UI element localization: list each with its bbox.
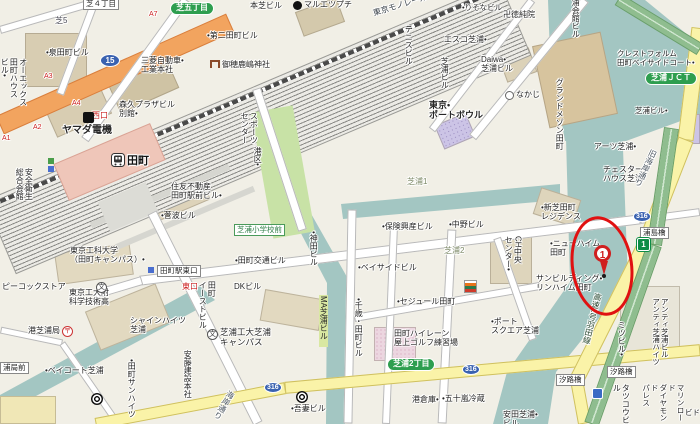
bldg-sumitomo-tamachi-ekimae: 住友不動産 田町駅前ビル• (171, 182, 222, 200)
pin-number: 1 (594, 245, 611, 262)
bldg-crestform-bayside: クレストフォルム 田町ベイサイドコート• (617, 50, 695, 67)
bldg-daini-tamachi: •第二田町ビル (207, 31, 258, 40)
bldg-esco-shibaura: エスコ芝浦• (444, 35, 487, 44)
bldg-igarashi-reizo: •五十嵐冷蔵 (442, 394, 485, 403)
bldg-kanda: •神田ビル (309, 231, 318, 273)
poi-tokyo-univ-tech-campus: 東京工科大学 （田町キャンパス）• (70, 246, 145, 264)
shield-route-316-mid: 316 (462, 364, 480, 375)
bldg-hoken-kosan: •保険興産ビル (382, 222, 433, 231)
bldg-anti-shibaura: アンティ芝浦ビル アンティ芝浦ハイツ (651, 298, 668, 372)
bldg-bido-partial: ビド (685, 409, 700, 418)
bus-sign-icon (148, 267, 154, 273)
bldg-minato-soko: 港倉庫• (412, 395, 439, 404)
bldg-suganami: •菅波ビル (161, 211, 196, 220)
bldg-arts-shibaura: アーツ芝浦• (594, 142, 636, 151)
bldg-shinshiba-residence: •新芝田町 レジデンス (541, 203, 581, 221)
station-tamachi[interactable]: 田町 (111, 152, 149, 168)
bldg-marine-road-diamond-palace: マリンロード ダイヤモンド パレス (641, 384, 684, 424)
building-block (0, 396, 56, 424)
exit-a3: A3 (44, 73, 53, 81)
bldg-ma-shibaura: MA芝浦ビル (319, 295, 328, 347)
pin-tail (600, 261, 608, 275)
bldg-risona: •りそなビル (462, 4, 502, 13)
badge-shibaura-jct: 芝浦ＪＣＴ (645, 72, 697, 85)
bldg-chitose-tamachi: •千歳・田町ビル (354, 298, 363, 364)
busstop-shibaura-elementary: 芝浦小学校前 (234, 224, 285, 236)
poi-tokyo-port-bowl: 東京• ポートボウル (429, 100, 483, 121)
poi-maruetsu-petit: マルエツプチ (304, 0, 352, 9)
poi-shibaura-tech-campus: 芝浦工大芝浦 キャンパス (220, 328, 271, 348)
badge-shibaura-2chome: 芝浦2丁目 (387, 358, 435, 371)
bldg-ando-honsha: 安藤建設本社 (183, 350, 192, 402)
bldg-shibaura: 芝浦ビル• (635, 107, 668, 116)
bldg-sejour-tamachi: •セジュール田町 (397, 297, 455, 306)
school-icon-sit: 文 (207, 329, 218, 340)
shield-route-15: 15 (100, 54, 120, 67)
poi-yamada-denki: ヤマダ電機 (62, 125, 112, 137)
bldg-ch-chuo-center: CH中央 センター• (504, 236, 522, 288)
seven-eleven-icon (464, 280, 477, 293)
bldg-mitsu: ミツビル• (617, 321, 626, 361)
exit-west: 西口 (92, 111, 108, 120)
area-shibaura-1: 芝浦1 (407, 177, 427, 186)
bldg-tamachi-kotsu: •田町交通ビル (235, 256, 286, 265)
bldg-dk: DKビル (234, 282, 261, 291)
bldg-shibaura-kaikan: 芝浦会館ビル (571, 0, 580, 42)
bldg-tamachi-sun-heights: •田町サンハイツ (127, 359, 136, 419)
sign-tamachi-east-exit: 田町駅東口 (157, 265, 201, 277)
poi-nakaji: なかじ (516, 90, 540, 99)
poi-icon-green (48, 158, 54, 164)
nakaji-icon (505, 91, 514, 100)
yamada-store-icon (83, 112, 94, 123)
pin-tip-dot (602, 274, 606, 278)
bldg-tamachi-east: 田町 イーストビル (198, 281, 216, 335)
bldg-morikyu-plaza: 森久プラザビル 別館• (119, 100, 175, 118)
poi-post-office-shibaura: 港芝浦局 (28, 326, 60, 335)
exit-a7: A7 (149, 11, 158, 19)
exit-a1: A1 (2, 135, 11, 143)
bldg-shibaura-v: 芝浦ビル (440, 57, 449, 95)
poi-tokujunin-temple: 卍徳純院 (503, 10, 535, 19)
bldg-mitsubishi-motors-hq: 三菱自動車• 工業本社 (141, 56, 184, 74)
shield-route-316-sw: 316 (264, 382, 282, 393)
bldg-shine-heights-shibaura: シャインハイツ 芝浦 (130, 316, 186, 334)
police-icon (592, 388, 603, 399)
bridge-shioji-1: 汐路橋 (556, 374, 585, 386)
post-office-icon: 〒 (62, 326, 73, 337)
bldg-nakano: •中野ビル (449, 220, 484, 229)
subway-icon-1 (91, 393, 103, 405)
exit-a2: A2 (33, 124, 42, 132)
poi-miho-kashima-shrine: 御穂鹿嶋神社 (222, 60, 270, 69)
bldg-daiwa-shibaura: Daiwa• 芝浦ビル (481, 55, 513, 73)
subway-icon-2 (296, 391, 308, 403)
building-block (260, 289, 325, 331)
bldg-honshiba: 本芝ビル (250, 1, 282, 10)
busstop-ura-mae: 浦局前 (0, 362, 29, 374)
bldg-azuma: •吾妻ビル (291, 404, 326, 413)
area-shiba5: 芝5 (55, 16, 67, 25)
bldg-izumi-tamachi: •泉田町ビル (46, 48, 89, 57)
bldg-bayside: •ベイサイドビル (358, 263, 417, 272)
bldg-tennis: テニスビル (404, 25, 413, 69)
shield-expressway-1: 1 (637, 238, 650, 251)
poi-peacock-store: ピーコックストア (2, 282, 66, 291)
exit-a4: A4 (72, 100, 81, 108)
exit-east: 東口 (182, 282, 198, 291)
poi-tamachi-hi-lane: 田町ハイレーン 屋上ゴルフ練習場 (394, 329, 458, 347)
poi-icon-blue (48, 166, 54, 172)
sign-shiba-4chome: 芝４丁目 (83, 0, 119, 10)
bldg-baycourt-shibaura: •ベイコート芝浦 (45, 366, 104, 375)
torii-icon (210, 60, 220, 68)
bldg-port-square-shibaura: •ポート スクエア芝浦 (491, 317, 539, 335)
map-pin-marker[interactable]: 1 (593, 245, 615, 279)
station-name: 田町 (127, 152, 149, 168)
bldg-anzen-eisei-kaikan: 安全衛生 総合会館 (15, 168, 33, 216)
poi-minato-ku: 港区• (253, 147, 262, 173)
bridge-shioji-2: 汐路橋 (607, 366, 636, 378)
badge-shiba-5chome: 芝五丁目 (170, 2, 214, 15)
bldg-yasuda-shibaura: 安田芝浦• ビル (503, 410, 538, 424)
map-canvas[interactable]: 田町 芝5•泉田町ビル三菱自動車• 工業本社森久プラザビル 別館•ヤマダ電機本芝… (0, 0, 700, 424)
jr-station-icon (111, 153, 125, 167)
shield-route-316-ne: 316 (633, 211, 651, 222)
maruetsu-icon (293, 1, 302, 10)
area-shibaura-2: 芝浦2 (444, 246, 464, 255)
bldg-tatsuko: タツコウビル (612, 384, 630, 424)
bldg-grand-maison-tamachi: グランドメゾン田町 (555, 78, 564, 160)
school-icon-hs: 文 (96, 282, 107, 293)
